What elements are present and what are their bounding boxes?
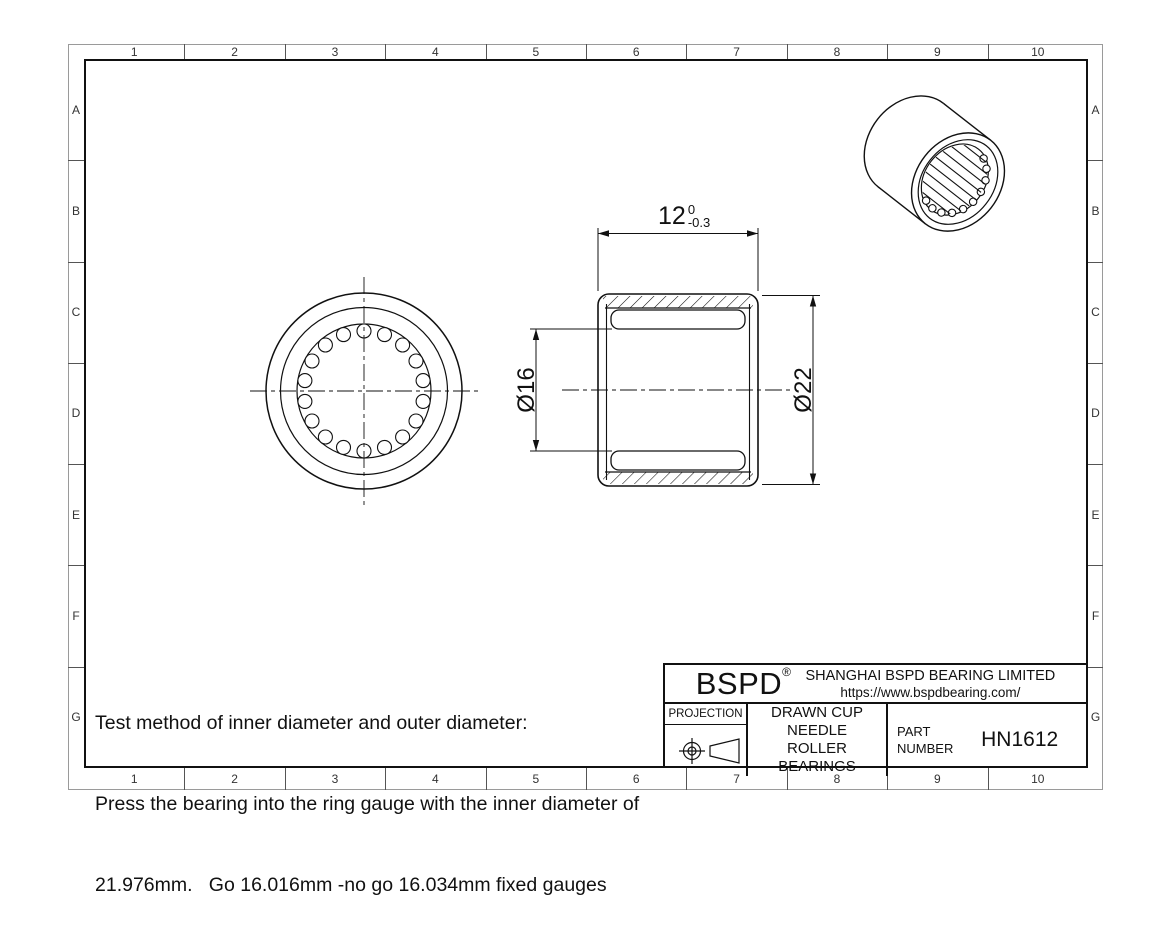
section-view [562,294,794,486]
drawing-sheet: { "colors": {"line": "#111111", "backgro… [0,0,1170,827]
note-line-1: Test method of inner diameter and outer … [95,710,670,737]
product-line-1: DRAWN CUP NEEDLE [748,704,886,740]
title-block-header: BSPD® SHANGHAI BSPD BEARING LIMITED http… [665,665,1086,704]
title-block-body: PROJECTION DRAWN CUP NEEDLE ROLLER BEARI… [665,704,1086,776]
company-name: SHANGHAI BSPD BEARING LIMITED [805,668,1055,684]
title-block: BSPD® SHANGHAI BSPD BEARING LIMITED http… [663,663,1088,768]
dimension-length [598,228,758,291]
note-line-2: Press the bearing into the ring gauge wi… [95,791,670,818]
test-method-notes: Test method of inner diameter and outer … [95,656,670,926]
front-view [250,277,478,505]
projection-cell: PROJECTION [665,704,748,776]
part-number-value: HN1612 [953,728,1086,752]
section-hatch-bottom [603,472,753,484]
registered-mark: ® [782,665,791,679]
bore-diameter-label: Ø16 [513,367,540,412]
part-number-label: PART NUMBER [897,723,953,757]
first-angle-projection-icon [665,725,746,776]
outer-diameter-label: Ø22 [790,367,817,412]
length-tolerance: 0 -0.3 [688,202,710,229]
length-value: 12 [658,202,686,230]
product-line-2: ROLLER BEARINGS [748,740,886,776]
projection-label: PROJECTION [665,704,746,725]
company-info: SHANGHAI BSPD BEARING LIMITED https://ww… [805,668,1055,700]
note-line-3: 21.976mm. Go 16.016mm -no go 16.034mm fi… [95,872,670,899]
part-number-cell: PART NUMBER HN1612 [888,704,1086,776]
product-type-cell: DRAWN CUP NEEDLE ROLLER BEARINGS [748,704,888,776]
front-view-centerlines [250,277,478,505]
brand-logo: BSPD® [696,665,792,702]
length-dimension-text: 12 0 -0.3 [658,202,710,230]
company-website: https://www.bspdbearing.com/ [805,685,1055,700]
section-hatch-top [603,296,753,308]
roller-top [611,310,745,329]
length-tolerance-lower: -0.3 [688,216,710,229]
roller-bottom [611,451,745,470]
iso-view [845,77,1024,249]
